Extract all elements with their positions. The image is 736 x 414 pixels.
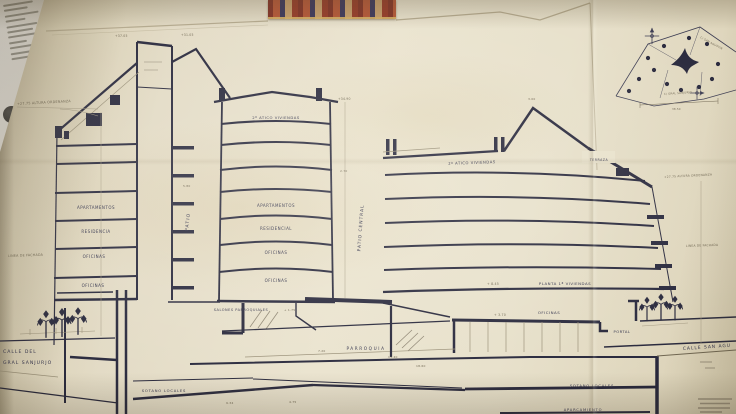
street-lamp-icon xyxy=(639,294,682,322)
oficinas-elevation-label: + 3.70 xyxy=(494,313,506,317)
sotano-locales-right-label: SOTANO LOCALES xyxy=(570,384,614,388)
drawing-labels: +27.75 ALTURA ORDENANZA LINEA DE FACHADA… xyxy=(3,33,731,412)
planta-viviendas-label: PLANTA 1ª VIVIENDAS xyxy=(539,281,591,286)
siteplan-dim-label: 38.50 xyxy=(672,107,681,111)
left-floor-residencia-label: RESIDENCIA xyxy=(81,229,110,234)
central-top-elevation-label: +34.90 xyxy=(338,97,351,101)
dim-11-40: 11.40 xyxy=(388,355,398,359)
sotano-locales-left-label: SOTANO LOCALES xyxy=(142,389,186,393)
photo-of-architectural-drawing: +27.75 ALTURA ORDENANZA LINEA DE FACHADA… xyxy=(0,0,736,414)
planta-elevation-label: + 8.45 xyxy=(487,282,499,286)
right-building-section xyxy=(383,108,736,353)
aparcamiento-label: APARCAMIENTO xyxy=(564,408,603,412)
dim-18-60: 18.60 xyxy=(416,364,426,368)
dim-4-75: 4.75 xyxy=(289,400,296,404)
portal-label: PORTAL xyxy=(614,330,631,334)
salones-elevation-label: + 1.75 xyxy=(284,308,295,312)
street-sanjurjo-label-2: GRAL SANJURJO xyxy=(3,360,52,366)
left-floor-oficinas-label: OFICINAS xyxy=(83,254,106,259)
ground-and-basement xyxy=(0,102,736,414)
central-building-section xyxy=(214,88,392,333)
central-height-dim: 2.70 xyxy=(340,169,347,173)
right-attic-label: 2º ATICO VIVIENDAS xyxy=(448,159,496,166)
left-building-section xyxy=(54,42,230,345)
ridge-dim: 3.00 xyxy=(528,97,535,101)
right-oficinas-label: OFICINAS xyxy=(538,310,560,315)
section-drawing-svg: +27.75 ALTURA ORDENANZA LINEA DE FACHADA… xyxy=(0,0,736,414)
left-floor-oficinas2-label: OFICINAS xyxy=(82,283,105,288)
gable-elevation-label: +31.05 xyxy=(181,33,194,37)
central-attic-label: 2º ATICO VIVIENDAS xyxy=(252,115,300,120)
siteplan-street-b-label: C/ GRAL SANJURJO xyxy=(664,90,692,96)
dim-7-20: 7.20 xyxy=(318,349,325,353)
drawing-sheet: +27.75 ALTURA ORDENANZA LINEA DE FACHADA… xyxy=(0,0,736,414)
north-arrow-icon xyxy=(690,87,704,100)
parroquia-label: PARROQUIA xyxy=(346,346,385,351)
linea-fachada-right-label: LINEA DE FACHADA xyxy=(686,243,719,248)
salones-parroquiales-label: SALONES PARROQUIALES xyxy=(214,308,269,312)
artwork-strip xyxy=(268,0,396,19)
linea-fachada-left-label: LINEA DE FACHADA xyxy=(8,253,44,258)
left-floor-apartamentos-label: APARTAMENTOS xyxy=(77,205,115,210)
handwritten-note-lines xyxy=(698,362,732,412)
dim-9-34: 9.34 xyxy=(226,401,233,405)
site-plan-inset xyxy=(616,27,736,108)
altura-ordenanza-left-label: +27.75 ALTURA ORDENANZA xyxy=(17,99,72,106)
patio-central-label: PATIO CENTRAL xyxy=(356,204,365,251)
street-sanjurjo-label-1: CALLE DEL xyxy=(3,349,37,355)
patio-label: PATIO xyxy=(184,212,192,231)
siteplan-street-a-label: C/ SAN AGUSTIN xyxy=(700,35,724,50)
central-floor-apartamentos-label: APARTAMENTOS xyxy=(257,203,295,208)
terraza-label: TERRAZA xyxy=(589,158,609,162)
tower-elevation-label: +37.05 xyxy=(115,34,128,38)
central-floor-oficinas-label: OFICINAS xyxy=(265,250,288,255)
central-floor-residencial-label: RESIDENCIAL xyxy=(260,226,292,231)
building-footprint-blob xyxy=(671,48,699,74)
north-arrow-icon xyxy=(645,28,659,44)
patio-width-dim: 5.80 xyxy=(183,184,190,188)
central-floor-oficinas2-label: OFICINAS xyxy=(265,278,288,283)
altura-ordenanza-right-label: +27.75 ALTURA ORDENANZA xyxy=(664,172,713,179)
